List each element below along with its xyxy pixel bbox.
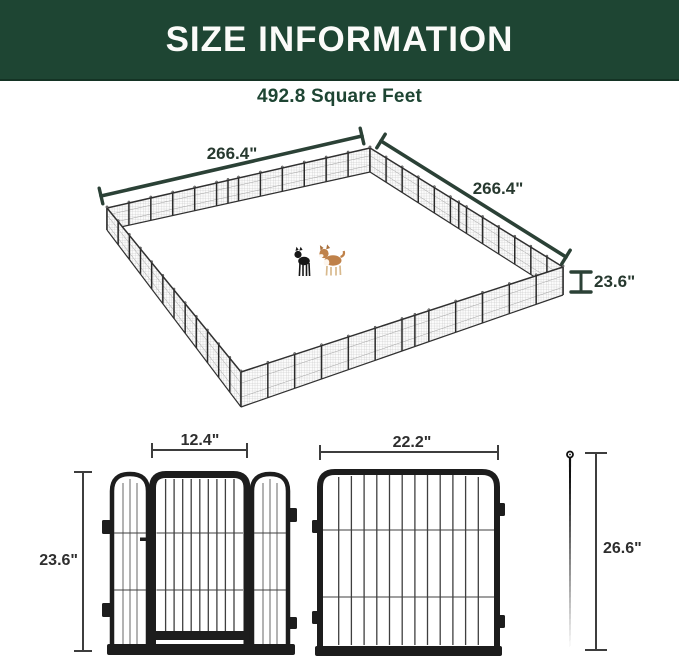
gate-panel-figure <box>102 474 297 655</box>
panel-base-bar <box>315 646 502 656</box>
pen-height-dimension-label: 23.6" <box>594 272 635 291</box>
connector-tab <box>102 520 111 534</box>
panel-detail-figures: 23.6" 12.4" <box>0 425 679 656</box>
gate-width-label: 12.4" <box>181 432 220 449</box>
pen-height-dimension: 23.6" <box>571 272 635 292</box>
header-banner: SIZE INFORMATION <box>0 0 679 81</box>
stake-height-dimension: 26.6" <box>585 453 642 650</box>
gate-height-label: 23.6" <box>39 552 78 569</box>
connector-tab <box>102 603 111 617</box>
wide-panel-figure <box>312 472 505 656</box>
gate-right-side-panel <box>252 474 297 646</box>
gate-height-dimension: 23.6" <box>39 472 92 651</box>
ground-stake-illustration <box>567 452 573 650</box>
pen-left-dimension-label: 266.4" <box>207 144 258 163</box>
pen-right-dimension-label: 266.4" <box>473 179 524 198</box>
pen-isometric-illustration: 266.4" 266.4" 23.6" <box>0 110 679 422</box>
page-title: SIZE INFORMATION <box>166 20 514 60</box>
gate-base-bar <box>107 644 295 655</box>
fence-wall <box>240 265 564 407</box>
gate-left-side-panel <box>102 474 148 646</box>
gate-width-dimension: 12.4" <box>152 432 247 458</box>
panel-width-dimension: 22.2" <box>320 434 498 460</box>
gate-door <box>140 475 256 647</box>
door-bottom-rail <box>154 631 245 640</box>
area-label: 492.8 Square Feet <box>0 86 679 108</box>
fence-wall <box>106 206 242 407</box>
pen-right-dimension: 266.4" <box>377 134 570 264</box>
black-dog-illustration <box>294 247 309 276</box>
corgi-dog-illustration <box>319 244 344 275</box>
stake-height-label: 26.6" <box>603 540 642 557</box>
panel-width-label: 22.2" <box>393 434 432 451</box>
door-latch <box>140 538 152 542</box>
fence-wall <box>369 146 564 295</box>
